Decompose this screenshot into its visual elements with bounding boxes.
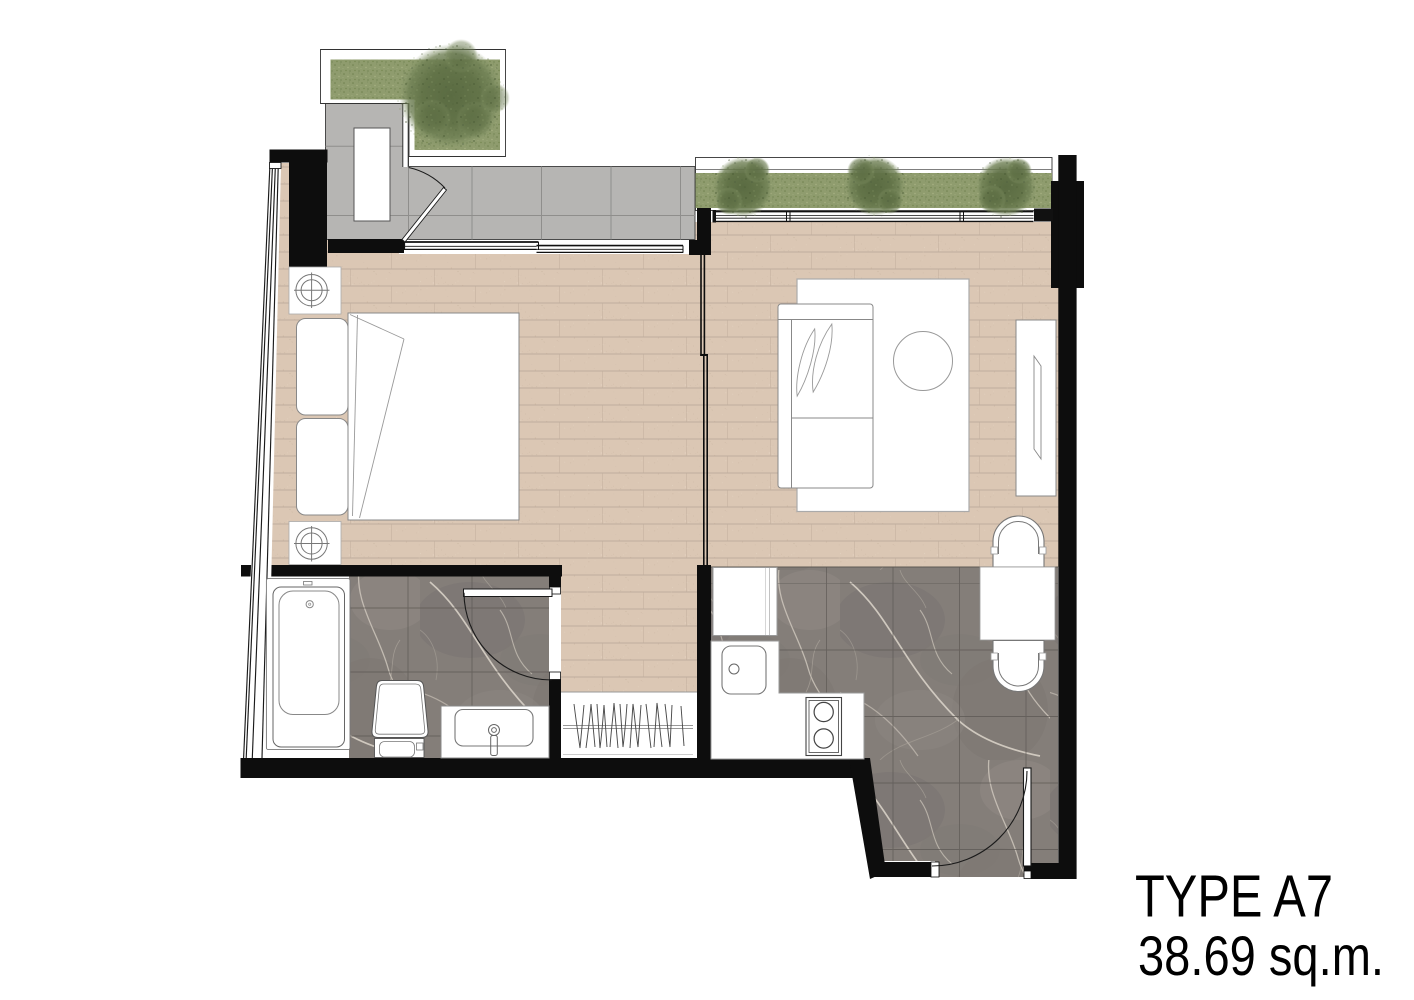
svg-text:TYPE A7: TYPE A7 [1135,863,1333,930]
svg-text:38.69 sq.m.: 38.69 sq.m. [1138,925,1384,987]
